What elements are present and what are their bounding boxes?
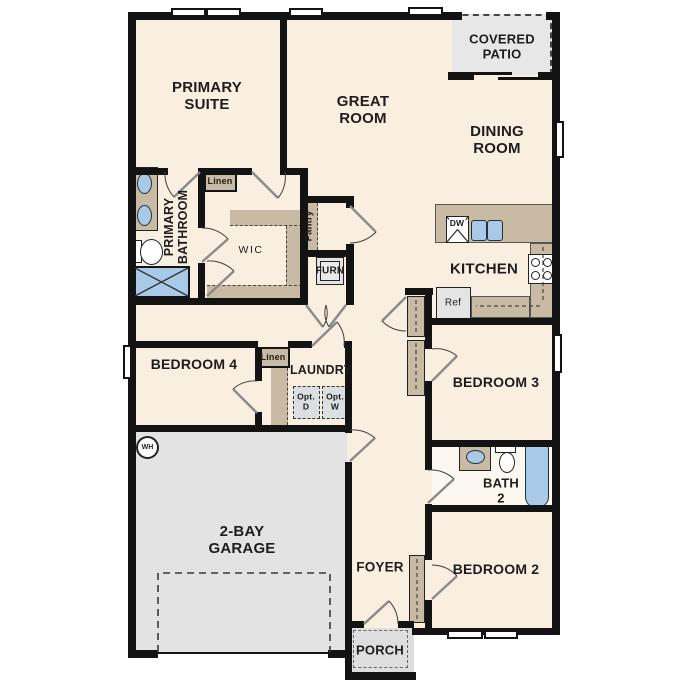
porch-label: PORCH [356, 644, 404, 659]
window [171, 8, 206, 17]
bathtub [525, 441, 549, 508]
window [289, 8, 323, 17]
wall [432, 505, 553, 512]
window [484, 630, 518, 639]
window [555, 121, 564, 158]
linen-upper-label: Linen [208, 176, 233, 186]
wall [425, 288, 432, 318]
kitchen-counter-bottom [471, 296, 530, 318]
kitchen-sink-basin-left [471, 220, 487, 241]
dishwasher-label: DW [449, 219, 466, 229]
vanity-sink-2 [137, 205, 152, 226]
burner-2 [543, 258, 552, 267]
wall [346, 244, 354, 305]
linen-hall-label: Linen [261, 352, 286, 362]
wall [288, 341, 312, 348]
kitchen-sink-basin-right [487, 220, 503, 241]
window [408, 7, 443, 16]
pantry-label: Pantry [305, 211, 316, 242]
bath2-sink [466, 450, 485, 464]
optional-dryer-label: Opt. D [297, 392, 315, 411]
optional-washer-label: Opt. W [326, 392, 344, 411]
foyer-closet-shelf [409, 555, 425, 623]
dining-room-label: DINING ROOM [470, 124, 524, 158]
wall [128, 12, 136, 658]
wall [398, 621, 414, 628]
wall [348, 298, 354, 305]
wall [425, 600, 432, 628]
bedroom3-label: BEDROOM 3 [453, 375, 540, 391]
coat-closet-shelf [407, 296, 425, 337]
bedroom4-label: BEDROOM 4 [151, 357, 238, 373]
great-room-label: GREAT ROOM [337, 94, 389, 128]
wall [198, 168, 252, 175]
wall [425, 381, 432, 470]
furn-label: FURN [316, 265, 345, 276]
wall [346, 196, 354, 208]
wic-label: WIC [239, 245, 264, 257]
wall [128, 650, 158, 658]
wall [280, 12, 287, 175]
wall [538, 72, 560, 80]
wall [128, 168, 168, 175]
wall [345, 341, 352, 433]
wall [128, 341, 258, 348]
patio-slider-door [470, 72, 512, 75]
bedroom2-label: BEDROOM 2 [453, 562, 540, 578]
wic-shelf-bottom [207, 285, 302, 298]
wall [198, 175, 205, 228]
patio-slider-door [498, 77, 540, 80]
window [206, 8, 241, 17]
bedroom3-closet-shelf [407, 340, 425, 396]
covered-patio-label: COVERED PATIO [469, 32, 535, 61]
primary-suite-label: PRIMARY SUITE [172, 80, 242, 114]
window [553, 334, 562, 373]
wall [205, 298, 308, 305]
shower [133, 266, 190, 298]
floor-plan: WH [0, 0, 687, 687]
laundry-label: LAUNDRY [290, 363, 352, 377]
refrigerator-label: Ref [445, 297, 461, 308]
water-heater-label: WH [142, 444, 154, 451]
burner-3 [531, 271, 540, 280]
wall [345, 462, 352, 658]
toilet-bowl-primary [140, 239, 163, 265]
primary-bathroom-label: PRIMARY BATHROOM [162, 190, 190, 264]
garage-label: 2-BAY GARAGE [208, 524, 275, 558]
window [123, 345, 132, 379]
hall-chase [271, 368, 288, 425]
wall [432, 318, 553, 325]
bath2-label: BATH 2 [483, 476, 519, 505]
burner-4 [543, 271, 552, 280]
wall [432, 440, 553, 447]
window [447, 630, 483, 639]
wall [425, 504, 432, 560]
wall [348, 672, 416, 680]
burner-1 [531, 258, 540, 267]
wall [425, 318, 432, 349]
wall [348, 621, 364, 628]
vanity-sink-1 [137, 173, 152, 194]
garage-door-line [158, 652, 328, 654]
toilet-bowl-bath2 [499, 452, 515, 473]
wall [552, 12, 560, 635]
wall [128, 425, 352, 432]
foyer-label: FOYER [356, 559, 404, 574]
water-heater: WH [136, 436, 159, 459]
wic-shelf-top [230, 210, 302, 226]
kitchen-label: KITCHEN [450, 262, 518, 279]
wall [128, 298, 205, 305]
